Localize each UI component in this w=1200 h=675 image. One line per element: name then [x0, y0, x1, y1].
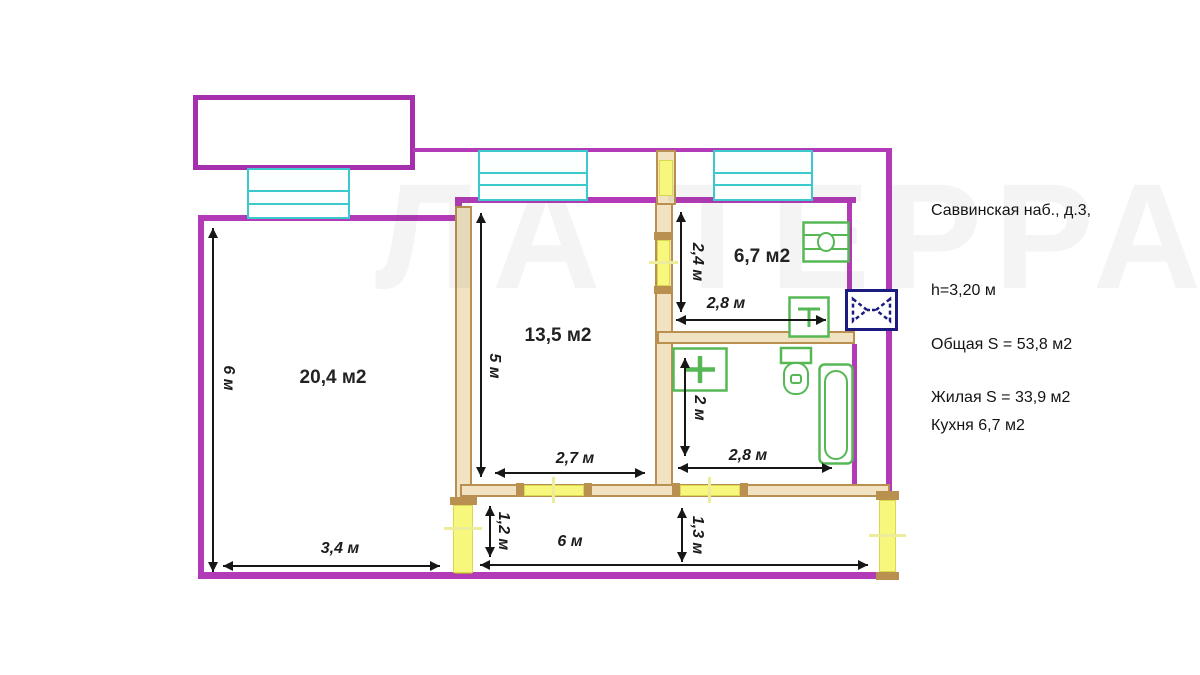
- living-room-label: 20,4 м2: [300, 367, 367, 389]
- floor-plan: ЛА ТЕРРА: [0, 0, 1200, 675]
- kitchen-door-cap-top: [654, 232, 673, 240]
- bathroom-door-cap-right: [740, 483, 748, 497]
- dim-arrow-living-height: [212, 228, 214, 572]
- dim-arrow-kitchen-height: [680, 212, 682, 312]
- dim-arrow-bathroom-height: [684, 358, 686, 456]
- bedroom-window: [478, 150, 588, 201]
- dim-label-hall-length: 6 м: [557, 533, 582, 551]
- living-room-window: [247, 168, 350, 219]
- window-pane-divider: [480, 184, 586, 186]
- wall-bottom: [198, 572, 892, 579]
- bathroom-door-tick: [708, 477, 711, 503]
- vent-shaft-icon: [845, 289, 898, 331]
- kitchen-label: 6,7 м2: [734, 246, 790, 268]
- bathtub-icon: [818, 363, 854, 465]
- bedroom-door-cap-right: [584, 483, 592, 497]
- living-area-text: Жилая S = 33,9 м2: [931, 389, 1070, 407]
- toilet-icon: [778, 346, 814, 398]
- dim-label-hall-mid: 1,3 м: [688, 516, 706, 555]
- entrance-door-tick: [869, 534, 906, 537]
- bathroom-door-cap-left: [672, 483, 680, 497]
- washbasin-icon: [672, 347, 728, 392]
- dim-arrow-hall-length: [480, 564, 868, 566]
- bedroom-door-cap-left: [516, 483, 524, 497]
- living-door: [453, 505, 473, 573]
- window-pier-stub-fill: [659, 160, 673, 196]
- kitchen-sink-icon: [802, 221, 850, 263]
- dim-label-kitchen-width: 2,8 м: [707, 295, 746, 313]
- entrance-door-cap-top: [876, 491, 899, 500]
- dim-arrow-bedroom-width: [495, 472, 645, 474]
- bedroom-door-tick: [552, 477, 555, 503]
- address-text: Саввинская наб., д.3,: [931, 202, 1091, 220]
- wall-left: [198, 218, 204, 578]
- total-area-text: Общая S = 53,8 м2: [931, 336, 1072, 354]
- kitchen-door-tick: [649, 261, 678, 264]
- kitchen-door-cap-bottom: [654, 286, 673, 294]
- bedroom-label: 13,5 м2: [525, 325, 592, 347]
- dim-label-living-width: 3,4 м: [321, 540, 360, 558]
- kitchen-window: [713, 150, 813, 201]
- dim-label-hall-left: 1,2 м: [494, 512, 512, 551]
- dim-arrow-living-width: [223, 565, 440, 567]
- dim-arrow-kitchen-width: [676, 319, 826, 321]
- entrance-door-cap-bottom: [876, 572, 899, 580]
- dim-arrow-hall-left: [489, 506, 491, 557]
- dim-arrow-hall-mid: [681, 508, 683, 562]
- window-pane-divider: [249, 203, 348, 205]
- dim-label-bedroom-height: 5 м: [485, 353, 503, 378]
- dim-arrow-bedroom-height: [480, 213, 482, 477]
- window-pane-divider: [715, 172, 811, 174]
- dim-label-bedroom-width: 2,7 м: [556, 450, 595, 468]
- window-pane-divider: [480, 172, 586, 174]
- dim-label-living-height: 6 м: [219, 365, 237, 390]
- ceiling-height-text: h=3,20 м: [931, 282, 996, 300]
- window-pane-divider: [715, 184, 811, 186]
- dim-label-kitchen-height: 2,4 м: [688, 243, 706, 282]
- window-pane-divider: [249, 190, 348, 192]
- living-door-tick: [444, 527, 482, 530]
- kitchen-area-text: Кухня 6,7 м2: [931, 417, 1025, 435]
- dim-label-bathroom-height: 2 м: [690, 395, 708, 420]
- dim-label-bathroom-width: 2,8 м: [729, 447, 768, 465]
- dim-arrow-bathroom-width: [678, 467, 832, 469]
- living-door-cap: [450, 497, 477, 505]
